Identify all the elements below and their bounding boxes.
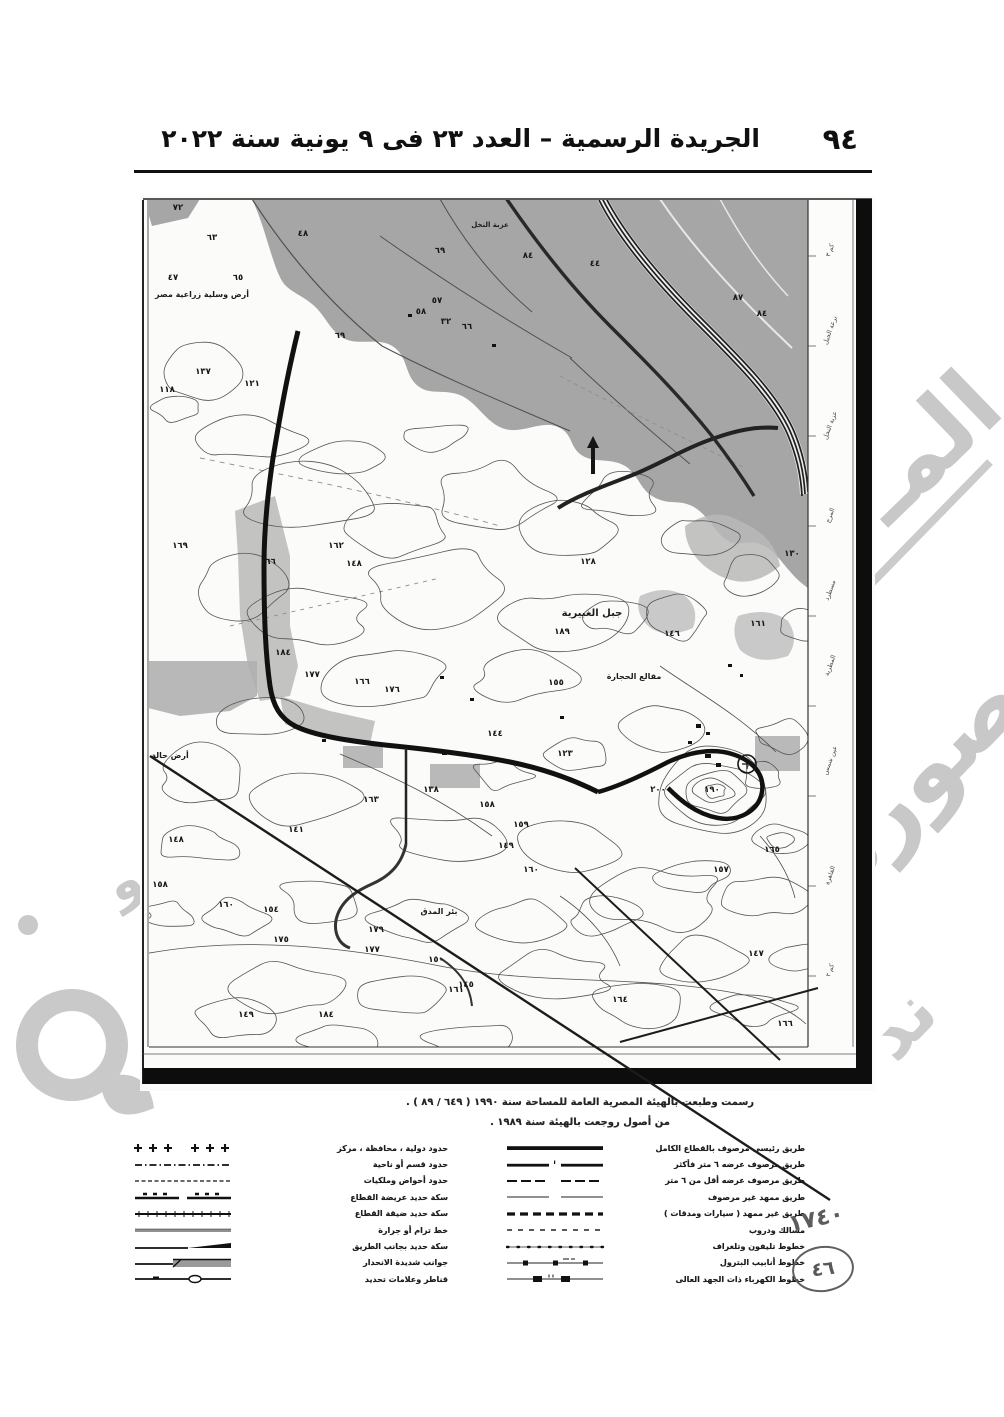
spot-height: ١٦٦	[260, 557, 276, 567]
spot-height: ١٤٦	[664, 629, 680, 639]
map-caption-line2: من أصول روجعت بالهيئة سنة ١٩٨٩ .	[300, 1116, 860, 1129]
spot-height: ٦٦	[462, 322, 472, 332]
spot-height: ١٨٩	[554, 627, 570, 637]
spot-height: ١١٨	[159, 385, 175, 395]
spot-height: ١٢١	[244, 379, 260, 389]
spot-height: ١٥٨	[479, 800, 495, 810]
legend-symbol-short-dashes	[505, 1222, 605, 1238]
spot-height: ١٧٧	[304, 670, 320, 680]
legend-label: جوانب شديدة الانحدار	[286, 1255, 448, 1271]
spot-height: ١٤٧	[748, 949, 764, 959]
spot-height: ٨٤	[757, 309, 767, 319]
spot-height: ١٦٠	[523, 865, 539, 875]
spot-height: ١٨٤	[275, 648, 291, 658]
place-label: جبل الغبيرية	[562, 608, 623, 619]
legend-label: خط ترام أو جرارة	[286, 1222, 448, 1238]
spot-height: ٤٨	[298, 229, 309, 239]
legend-symbol-fine-dash	[133, 1173, 233, 1189]
spot-height: ١٣٠	[784, 549, 800, 559]
spot-height: ١٧٧	[364, 945, 380, 955]
legend-label: طريق مرصوف عرضه أقل من ٦ متر	[648, 1173, 805, 1189]
spot-height: ١٧٩	[368, 925, 384, 935]
legend-label: طريق مرصوف عرضه ٦ متر فأكثر	[648, 1156, 805, 1172]
legend-symbol-double-tick	[133, 1189, 233, 1205]
legend-symbol-bold-dashes	[505, 1206, 605, 1222]
spot-height: ٦٣	[207, 233, 218, 243]
spot-height: ٦٩	[435, 246, 446, 256]
place-label: مقالع الحجارة	[607, 672, 662, 681]
circled-number-value: ٤٦	[810, 1257, 836, 1282]
legend-symbol-thin-gap	[505, 1189, 605, 1205]
legend-label: قناطر وعلامات تحديد	[286, 1271, 448, 1287]
spot-height: ١٦٦	[354, 677, 370, 687]
spot-height: ١٦٦	[777, 1019, 793, 1029]
spot-height: ١٤٥	[458, 980, 474, 990]
place-label: بئر المدق	[421, 907, 458, 916]
spot-height: ١٤٨	[168, 835, 184, 845]
spot-height: ٨٤	[523, 251, 533, 261]
legend-symbols-column	[133, 1140, 233, 1288]
spot-height: ١٥٨	[152, 880, 168, 890]
legend-symbol-thick-bar	[505, 1140, 605, 1156]
spot-height: ١٣٨	[423, 785, 439, 795]
spot-height: ١٤١	[288, 825, 304, 835]
place-label: أرض وسلية زراعية مصر	[154, 289, 249, 300]
place-label: عزبة النخل	[471, 221, 509, 229]
legend-label: خطوط تليفون وتلغراف	[648, 1238, 805, 1254]
plot-patch	[343, 746, 383, 768]
spot-height: ٢٠٠	[650, 785, 666, 795]
spot-height: ١٧٦	[384, 685, 400, 695]
spot-height: ١٩٠	[704, 785, 720, 795]
legend-symbol-double-bar-gap	[505, 1156, 605, 1172]
spot-height: ٤٤	[590, 259, 600, 269]
spot-height: ١٦٤	[612, 995, 628, 1005]
legend-symbols-column	[505, 1140, 605, 1288]
legend-labels-column: حدود دولية ، محافظة ، مركزحدود قسم أو نا…	[286, 1140, 448, 1288]
spot-height: ١٥٤	[263, 905, 279, 915]
spot-height: ١٥٩	[513, 820, 529, 830]
spot-height: ١٤٩	[498, 841, 514, 851]
place-label: أرض حالة	[151, 750, 189, 761]
legend-label: طريق ممهد غير مرصوف	[648, 1189, 805, 1205]
spot-height: ٨٧	[733, 293, 744, 303]
legend-label: سكة حديد بجانب الطريق	[286, 1238, 448, 1254]
copy-stamp-left: و	[18, 848, 154, 1114]
legend-symbol-crosses	[133, 1140, 233, 1156]
spot-height: ٣٢	[441, 317, 452, 327]
legend-label: حدود دولية ، محافظة ، مركز	[286, 1140, 448, 1156]
spot-height: ٥٨	[416, 307, 427, 317]
header-rule	[134, 170, 872, 173]
legend-labels-column: طريق رئيسى مرصوف بالقطاع الكاملطريق مرصو…	[648, 1140, 805, 1288]
spot-height: ١٥٥	[548, 678, 564, 688]
legend-symbol-cutting	[133, 1255, 233, 1271]
map-caption-line1: رسمت وطبعت بالهيئة المصرية العامة للمساح…	[300, 1096, 860, 1109]
legend-label: سكة حديد ضيقة القطاع	[286, 1206, 448, 1222]
legend-symbol-culvert	[133, 1271, 233, 1287]
legend-label: حدود قسم أو ناحية	[286, 1156, 448, 1172]
legend-symbol-dot-diamond	[505, 1238, 605, 1254]
legend-symbol-thin-line	[133, 1222, 233, 1238]
legend-symbol-embankment	[133, 1238, 233, 1254]
spot-height: ٤٧	[168, 273, 179, 283]
page-number: ٩٤	[823, 122, 858, 156]
legend-label: خطوط أنابيب البترول	[648, 1255, 805, 1271]
legend-symbol-dash-dot	[133, 1156, 233, 1172]
spot-height: ١٦٠	[218, 900, 234, 910]
legend-symbol-tick-line	[133, 1206, 233, 1222]
spot-height: ١٦٢	[328, 541, 344, 551]
spot-height: ١٤٤	[487, 729, 503, 739]
spot-height: ١٥٠	[428, 955, 444, 965]
legend-label: سكة حديد عريضة القطاع	[286, 1189, 448, 1205]
spot-height: ٧٢	[173, 203, 184, 213]
map-caption: رسمت وطبعت بالهيئة المصرية العامة للمساح…	[300, 1096, 860, 1136]
spot-height: ١٥٧	[713, 865, 729, 875]
legend-label: حدود أحواض وملكيات	[286, 1173, 448, 1189]
spot-height: ٦٩	[335, 331, 346, 341]
spot-height: ١٤٨	[346, 559, 362, 569]
spot-height: ١٦١	[750, 619, 766, 629]
legend-label: مسالك ودروب	[648, 1222, 805, 1238]
legend-label: طريق غير ممهد ( سيارات ومدقات )	[648, 1206, 805, 1222]
legend-symbol-dash-gap	[505, 1173, 605, 1189]
spot-height: ٥٧	[432, 296, 443, 306]
spot-height: ١٦٩	[172, 541, 188, 551]
header-title: الجريدة الرسمية – العدد ٢٣ فى ٩ يونية سن…	[161, 124, 760, 153]
sheet-margin: كم ٣ترعة الجبلعزبة النخلالمرجمسطردالمطري…	[808, 200, 856, 1047]
survey-map: ٧٢٦٣٤٧٦٥٤٨٦٩٨٤٤٤٨٧٨٤٥٧٥٨٣٢٦٦٦٩١٣٧١١٨١٢١١…	[140, 196, 875, 1091]
spot-height: ١٨٤	[318, 1010, 334, 1020]
spot-height: ١٦٣	[363, 795, 379, 805]
legend-symbol-rects-line	[505, 1271, 605, 1287]
spot-height: ١٢٨	[580, 557, 596, 567]
legend-label: طريق رئيسى مرصوف بالقطاع الكامل	[648, 1140, 805, 1156]
spot-height: ١٣٧	[195, 367, 211, 377]
spot-height: ٦٥	[233, 273, 243, 283]
spot-height: ١٤٩	[238, 1010, 254, 1020]
spot-height: ١٢٣	[557, 749, 573, 759]
spot-height: ١٦٥	[764, 845, 780, 855]
legend-label: خطوط الكهرباء ذات الجهد العالى	[648, 1271, 805, 1287]
spot-height: ١٧٥	[273, 935, 289, 945]
legend-symbol-squares-line	[505, 1255, 605, 1271]
